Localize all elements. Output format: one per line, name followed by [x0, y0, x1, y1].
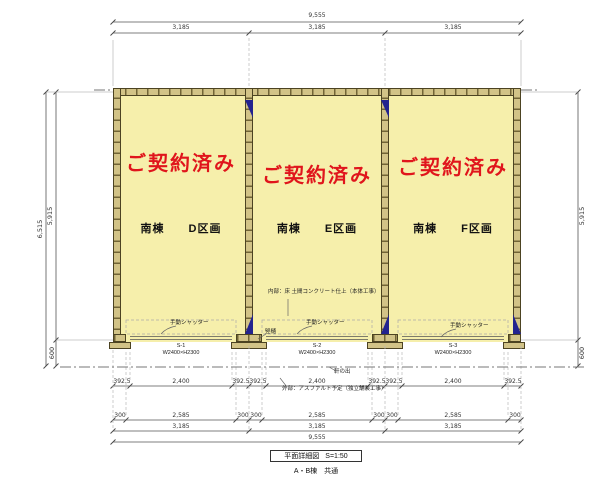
dimension-linework	[0, 0, 600, 481]
dim-left-apron: 600	[48, 331, 56, 375]
dim-row2: 2,585	[166, 412, 196, 419]
drawing-scale: S=1:50	[325, 453, 347, 460]
dim-row1: 392.5	[243, 378, 273, 385]
floor-plan-drawing: 9,555 3,185 3,185 3,185 6,515 5,915 600 …	[0, 0, 600, 481]
dim-bottom-total: 9,555	[297, 434, 337, 441]
dim-row1: 2,400	[166, 378, 196, 385]
note-interior-finish: 内部：床 土間コンクリート仕上（本体工事）	[268, 290, 380, 296]
dim-row1: 2,400	[302, 378, 332, 385]
dim-row3: 3,185	[161, 423, 201, 430]
unit-name: 南棟 D区画	[113, 220, 249, 236]
dim-row2: 300	[377, 412, 407, 419]
dim-row2: 300	[105, 412, 135, 419]
dim-row2: 300	[500, 412, 530, 419]
dim-row1: 392.5	[498, 378, 528, 385]
shutter-size: W2400×H2300	[113, 351, 249, 357]
note-downspout: 竪樋	[265, 330, 276, 336]
dim-left-total: 6,515	[36, 207, 44, 251]
note-manual-shutter: 手動シャッター	[450, 324, 489, 330]
dim-row3: 3,185	[433, 423, 473, 430]
unit-status-sold: ご契約済み	[113, 147, 249, 176]
note-manual-shutter: 手動シャッター	[170, 321, 209, 327]
dim-top-unit: 3,185	[297, 24, 337, 31]
shutter-size: W2400×H2300	[249, 351, 385, 357]
dim-row3: 3,185	[297, 423, 337, 430]
dim-row2: 300	[241, 412, 271, 419]
shutter-code: S-2	[249, 344, 385, 350]
dim-right-main: 5,915	[578, 194, 586, 238]
drawing-subtitle: A・B棟 共通	[270, 466, 362, 476]
dim-row2: 2,585	[438, 412, 468, 419]
shutter-code: S-1	[113, 344, 249, 350]
dim-row1: 2,400	[438, 378, 468, 385]
dim-top-total: 9,555	[297, 12, 337, 19]
dim-left-main: 5,915	[46, 194, 54, 238]
unit-status-sold: ご契約済み	[385, 151, 521, 180]
note-manual-shutter: 手動シャッター	[306, 321, 345, 327]
shutter-code: S-3	[385, 344, 521, 350]
unit-status-sold: ご契約済み	[249, 159, 385, 188]
dim-row1: 392.5	[107, 378, 137, 385]
dim-right-apron: 600	[578, 331, 586, 375]
unit-name: 南棟 E区画	[249, 220, 385, 236]
note-eaves: 軒の出	[334, 370, 351, 376]
dim-row2: 2,585	[302, 412, 332, 419]
dim-top-unit: 3,185	[433, 24, 473, 31]
drawing-title: 平面詳細図	[284, 451, 319, 461]
unit-name: 南棟 F区画	[385, 220, 521, 236]
note-exterior-paving: 外部：アスファルト予定（独立舗装工事）	[282, 387, 387, 393]
dim-top-unit: 3,185	[161, 24, 201, 31]
dim-row1: 392.5	[379, 378, 409, 385]
shutter-size: W2400×H2300	[385, 351, 521, 357]
title-block: 平面詳細図 S=1:50	[270, 450, 362, 462]
